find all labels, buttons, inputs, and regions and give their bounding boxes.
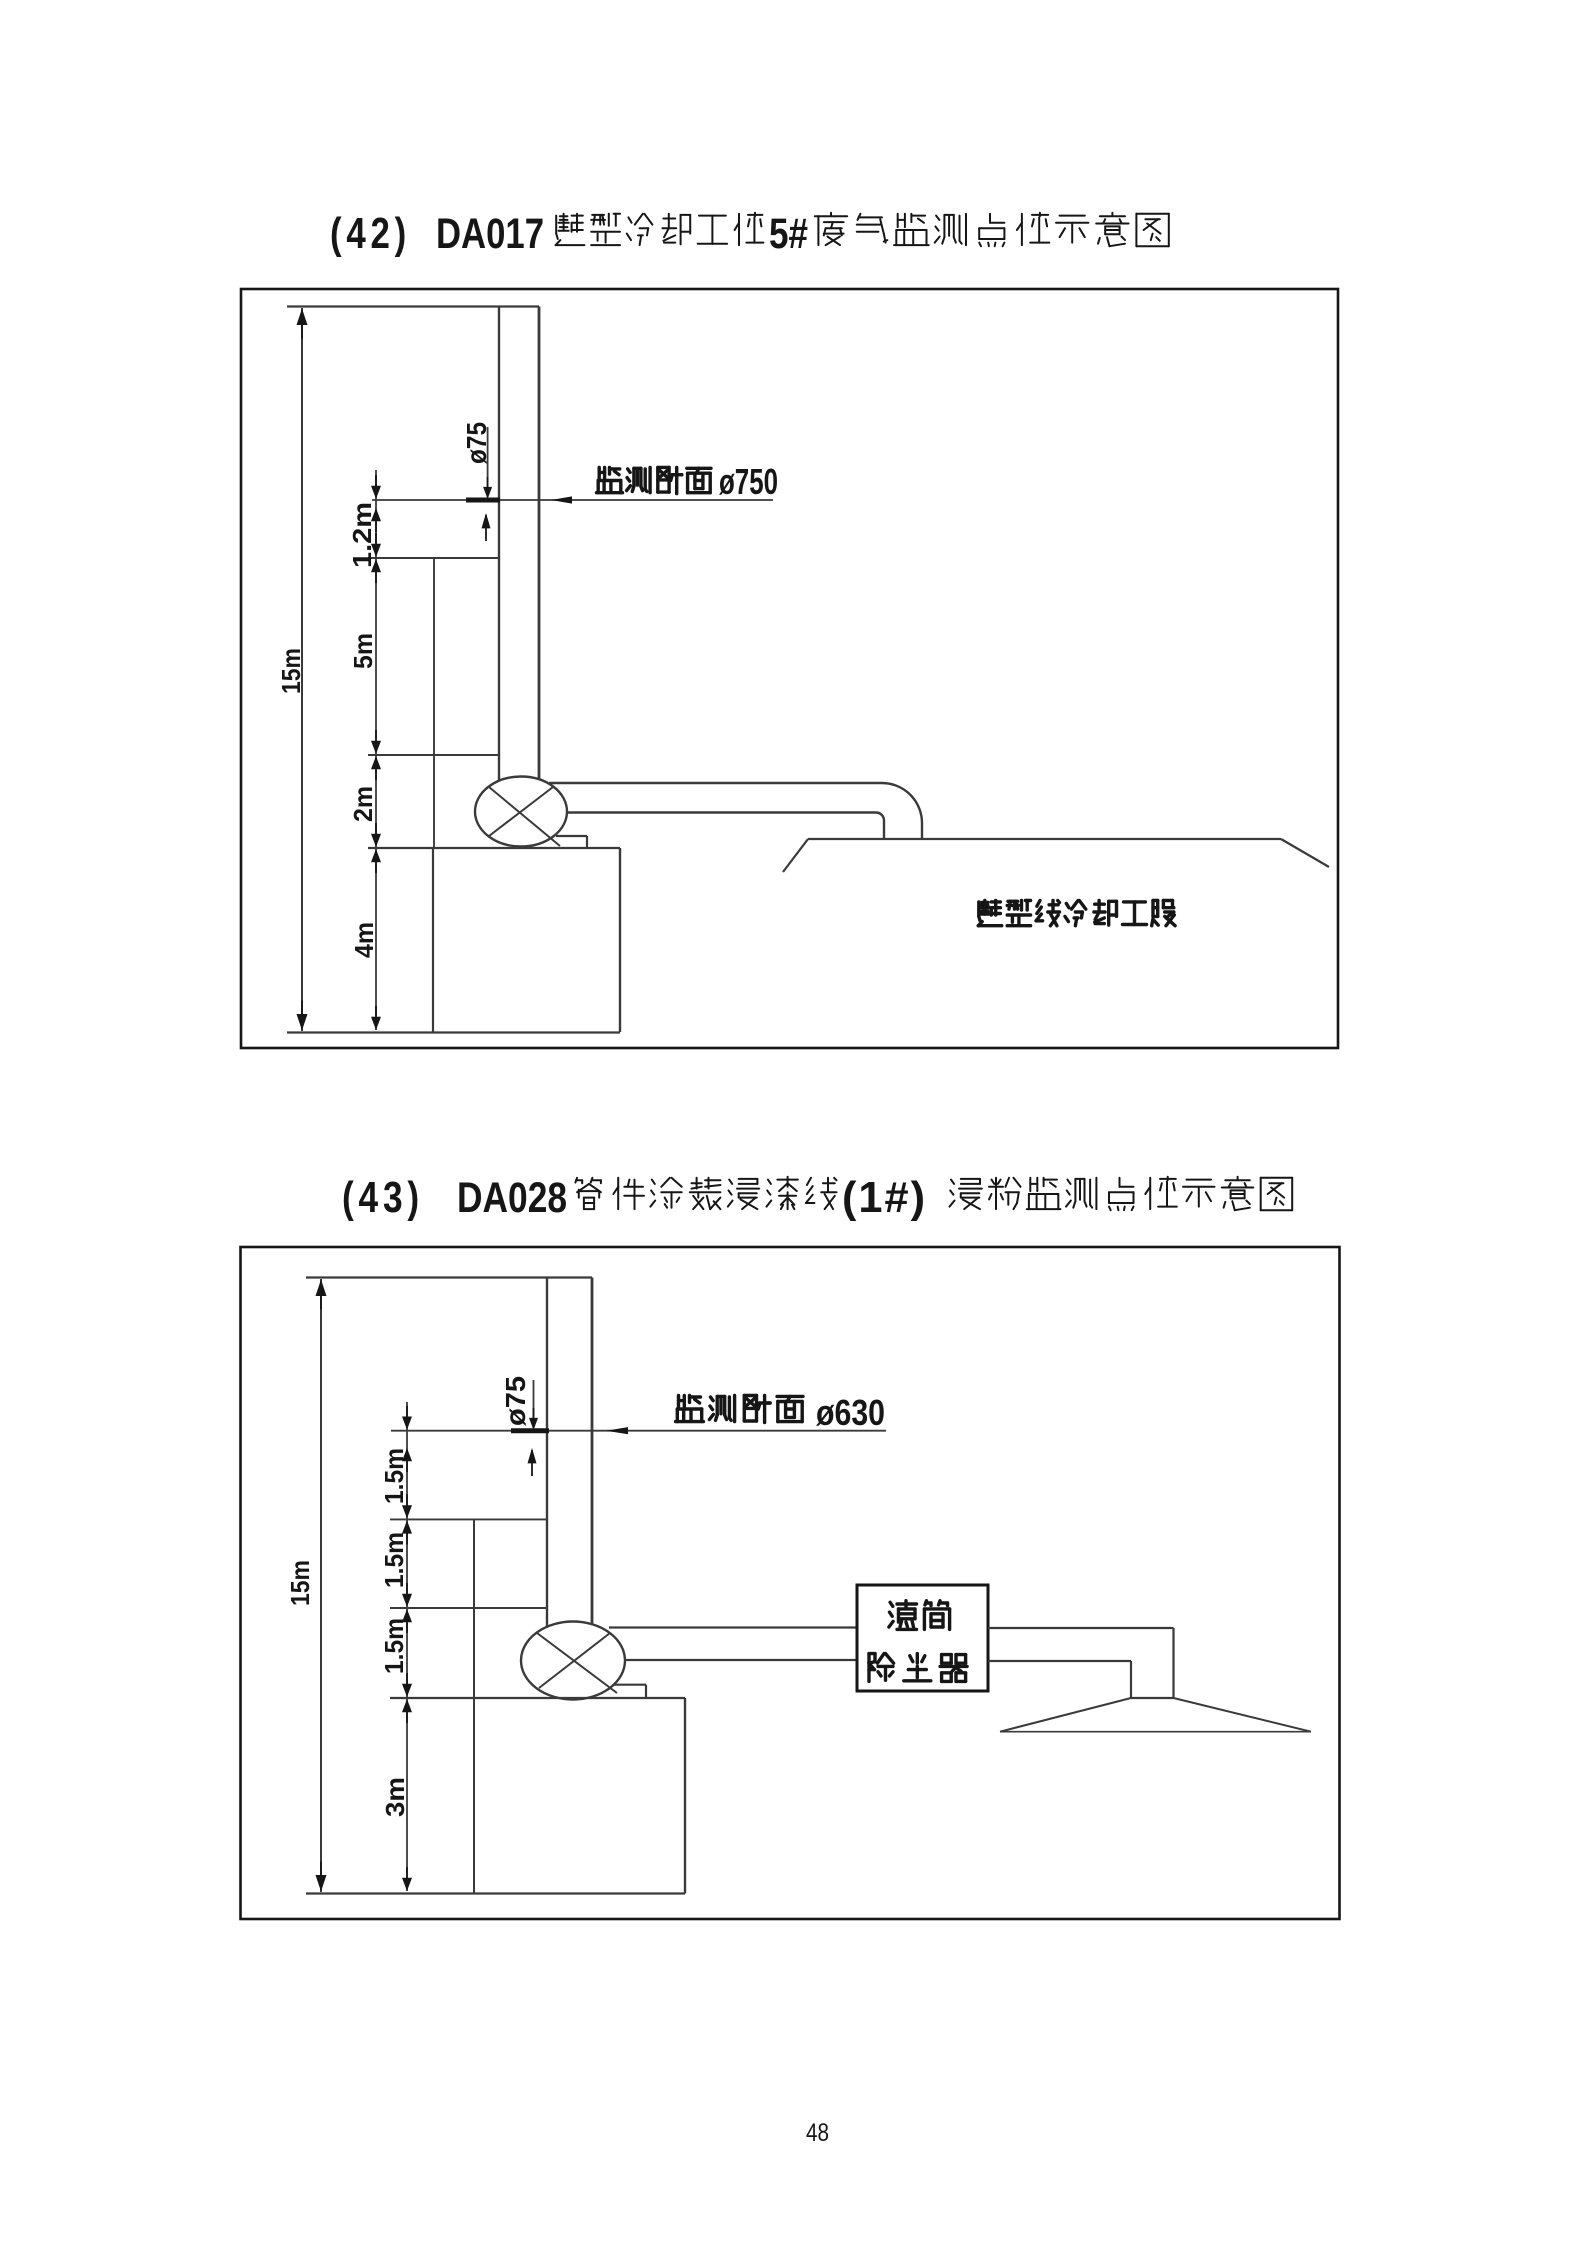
svg-text:ø75: ø75 bbox=[500, 1376, 531, 1426]
svg-text:(1#): (1#) bbox=[842, 1173, 927, 1222]
svg-text:15m: 15m bbox=[285, 1560, 315, 1606]
svg-text:DA017: DA017 bbox=[436, 210, 544, 258]
svg-text:4m: 4m bbox=[349, 922, 379, 958]
svg-text:1.2m: 1.2m bbox=[347, 502, 377, 568]
svg-text:15m: 15m bbox=[276, 648, 306, 694]
svg-text:ø630: ø630 bbox=[816, 1392, 885, 1433]
svg-text:(43): (43) bbox=[342, 1173, 424, 1222]
svg-text:(42): (42) bbox=[330, 209, 411, 258]
svg-text:5m: 5m bbox=[348, 633, 378, 669]
svg-text:48: 48 bbox=[806, 2119, 829, 2147]
svg-text:ø750: ø750 bbox=[719, 461, 778, 502]
svg-text:2m: 2m bbox=[348, 786, 378, 822]
svg-text:1.5m: 1.5m bbox=[379, 1448, 409, 1504]
svg-text:3m: 3m bbox=[380, 1777, 410, 1817]
svg-text:1.5m: 1.5m bbox=[379, 1532, 409, 1588]
svg-text:5#: 5# bbox=[769, 210, 808, 258]
svg-text:DA028: DA028 bbox=[457, 1174, 567, 1222]
svg-text:1.5m: 1.5m bbox=[379, 1618, 409, 1674]
